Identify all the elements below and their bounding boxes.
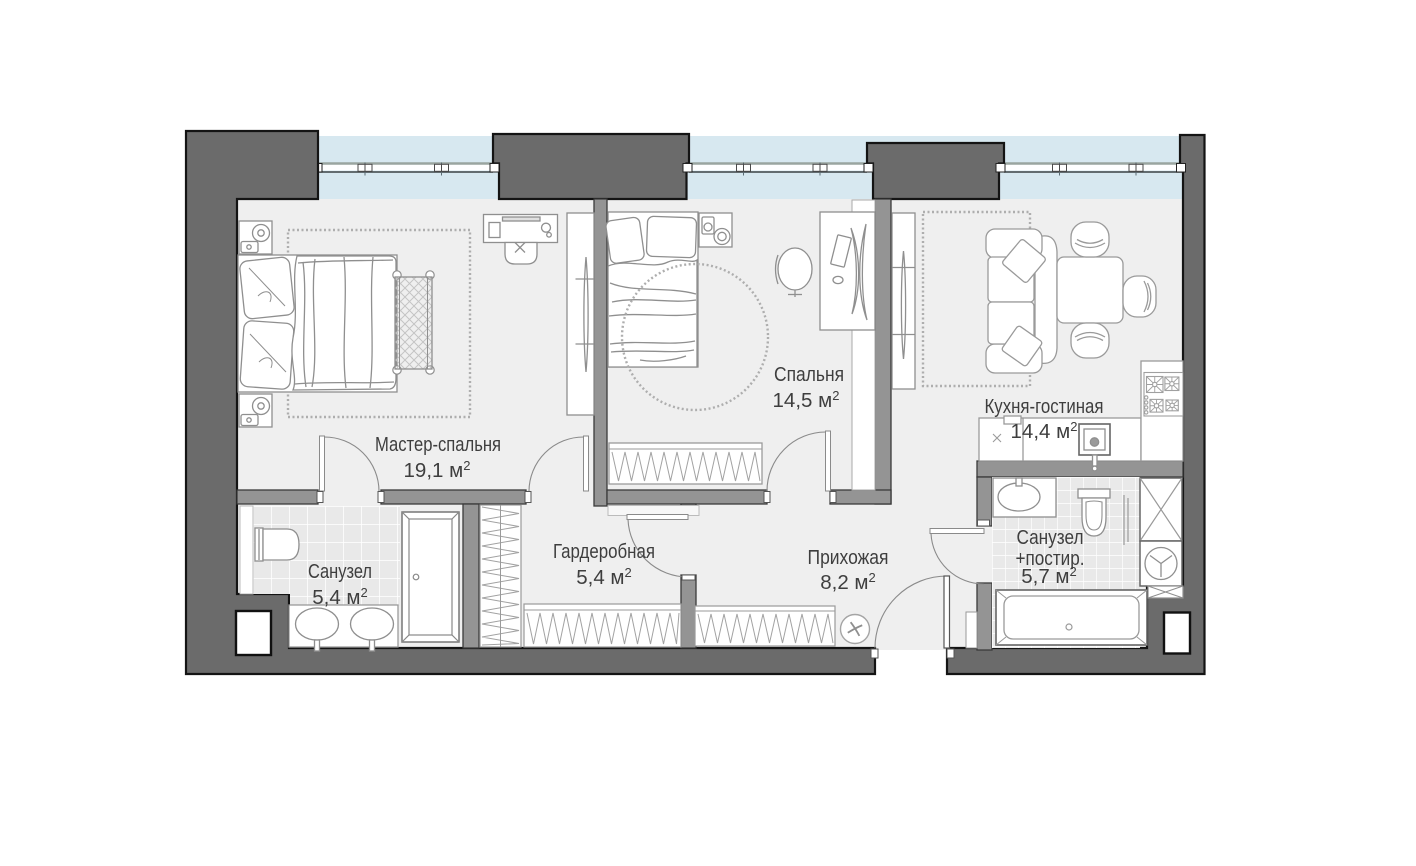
svg-text:14,4 м2: 14,4 м2	[1011, 419, 1078, 443]
svg-text:8,2 м2: 8,2 м2	[820, 570, 876, 594]
svg-text:5,7 м2: 5,7 м2	[1021, 564, 1077, 588]
svg-text:Мастер-спальня: Мастер-спальня	[375, 433, 501, 456]
svg-text:Санузел: Санузел	[308, 560, 372, 583]
svg-text:Спальня: Спальня	[774, 363, 844, 386]
svg-text:5,4 м2: 5,4 м2	[312, 585, 368, 609]
svg-text:14,5 м2: 14,5 м2	[773, 388, 840, 412]
svg-text:Кухня-гостиная: Кухня-гостиная	[985, 395, 1104, 418]
svg-text:Прихожая: Прихожая	[808, 546, 889, 569]
svg-text:19,1 м2: 19,1 м2	[404, 458, 471, 482]
svg-text:Гардеробная: Гардеробная	[553, 540, 655, 563]
svg-text:Санузел: Санузел	[1017, 526, 1084, 549]
svg-text:5,4 м2: 5,4 м2	[576, 565, 632, 589]
